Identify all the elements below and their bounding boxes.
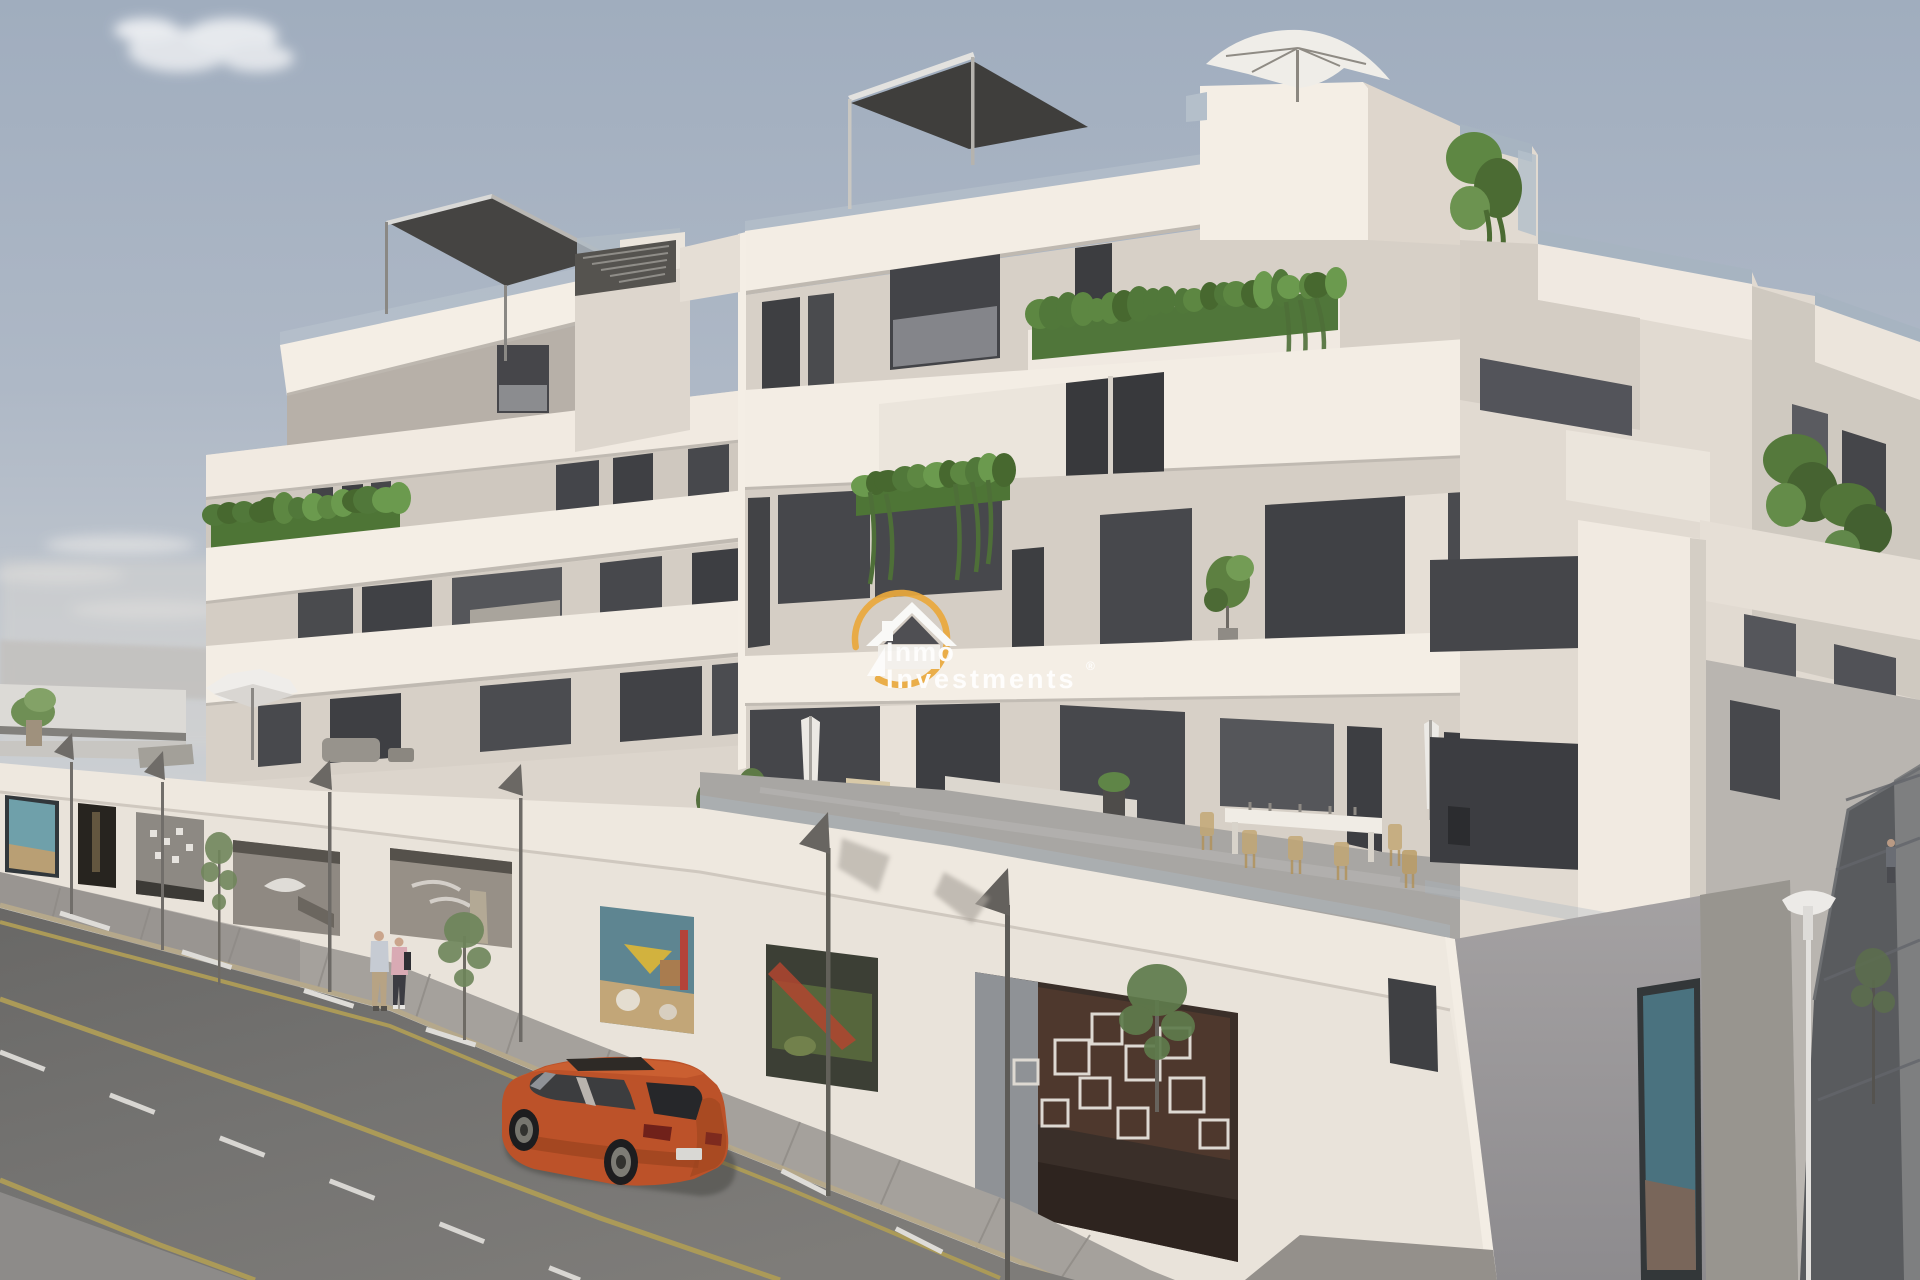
svg-text:Inmo: Inmo bbox=[886, 637, 955, 667]
svg-text:Investments: Investments bbox=[886, 664, 1077, 694]
svg-text:®: ® bbox=[1086, 659, 1095, 673]
